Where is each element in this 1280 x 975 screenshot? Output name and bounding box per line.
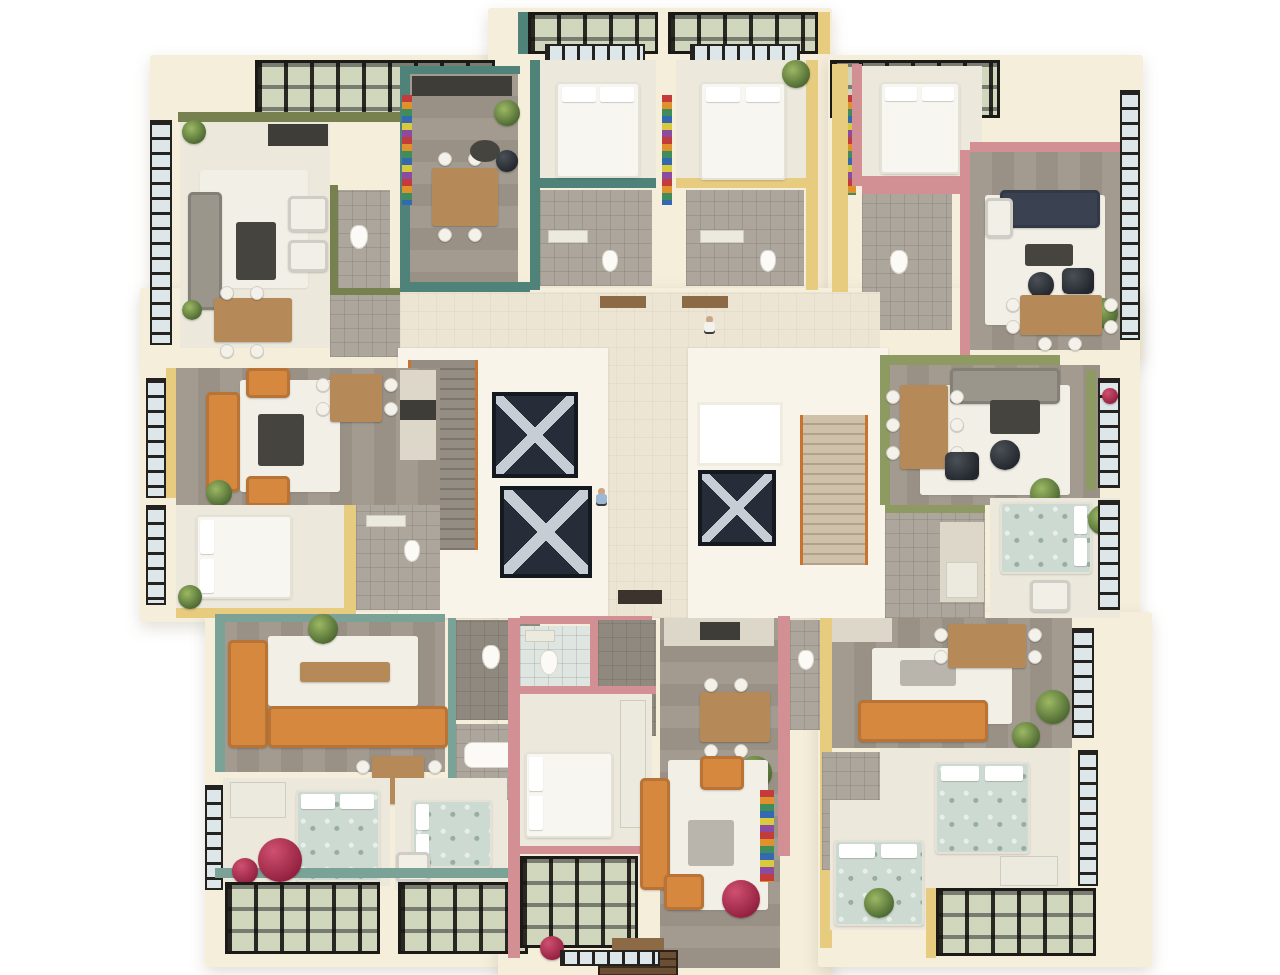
dining-table (900, 385, 948, 469)
coffee-table (258, 414, 304, 466)
wall-accent (518, 12, 528, 54)
wall-accent (818, 12, 830, 54)
dining-chair (950, 390, 964, 404)
wall-accent (832, 64, 848, 304)
person-figure (596, 488, 607, 506)
potted-plant (182, 120, 206, 144)
magenta-pouf (232, 858, 258, 884)
rainbow-bookshelf (760, 790, 774, 882)
dining-chair (384, 378, 398, 392)
magenta-pouf (722, 880, 760, 918)
wall-accent (806, 60, 818, 290)
orange-sectional-sofa (228, 640, 268, 748)
media-console (990, 400, 1040, 434)
coffee-table (1025, 244, 1073, 266)
toilet (760, 250, 776, 272)
coffee-table (688, 820, 734, 866)
window-strip (1098, 500, 1120, 610)
stairwell (800, 415, 868, 565)
bedroom-bench (1030, 580, 1070, 612)
potted-plant (182, 300, 202, 320)
black-armchair (1062, 268, 1094, 294)
window-strip (146, 505, 166, 605)
window-strip (1078, 750, 1098, 886)
orange-sofa (858, 700, 988, 742)
gray-sofa (188, 192, 222, 310)
dining-chair (316, 378, 330, 392)
coffee-table (236, 222, 276, 280)
gray-sofa (950, 368, 1060, 404)
bathroom-vanity (700, 230, 744, 243)
dining-chair (438, 228, 452, 242)
toilet (540, 650, 558, 675)
wall-accent (330, 185, 338, 295)
rainbow-bookshelf (662, 95, 672, 205)
toilet (404, 540, 420, 562)
toilet (482, 645, 500, 669)
desk (1000, 856, 1058, 886)
double-bed (196, 515, 292, 599)
window-strip (1072, 628, 1094, 738)
double-bed (556, 82, 640, 178)
apartment-door (682, 296, 728, 308)
orange-armchair (700, 756, 744, 790)
dining-table (1020, 295, 1102, 335)
dining-chair (1006, 320, 1020, 334)
wall-accent (778, 616, 790, 856)
navy-sofa (1000, 190, 1100, 228)
dining-chair (250, 286, 264, 300)
double-bed (880, 82, 960, 174)
orange-armchair (246, 368, 290, 398)
door-mat (618, 590, 662, 604)
magenta-pouf (1102, 388, 1118, 404)
orange-armchair (664, 874, 704, 910)
window-strip (1120, 90, 1140, 340)
wall-accent (926, 888, 936, 958)
dining-table (330, 374, 382, 422)
toilet (890, 250, 908, 274)
dining-chair (886, 390, 900, 404)
coffee-table (300, 662, 390, 682)
window-strip (146, 378, 166, 498)
wall-accent (400, 66, 520, 74)
wall-accent (530, 60, 540, 290)
wall-accent (508, 618, 520, 958)
wall-accent (1086, 370, 1096, 490)
glass-roof-balcony (936, 888, 1096, 956)
double-bed (525, 752, 613, 838)
dining-table (432, 168, 498, 226)
wall-accent (970, 142, 1120, 152)
wall-accent (885, 505, 985, 513)
wall-accent (960, 150, 970, 360)
wall-accent (178, 112, 418, 122)
dining-chair (950, 418, 964, 432)
toilet (350, 225, 368, 249)
wall-accent (516, 686, 656, 694)
dining-table (214, 298, 292, 342)
dining-chair (356, 760, 370, 774)
dining-chair (1028, 628, 1042, 642)
potted-plant (864, 888, 894, 918)
dining-chair (704, 678, 718, 692)
armchair (288, 240, 328, 272)
orange-armchair (246, 476, 290, 506)
toilet (602, 250, 618, 272)
potted-plant (782, 60, 810, 88)
dining-chair (468, 228, 482, 242)
dining-chair (428, 760, 442, 774)
elevator-shaft (492, 392, 578, 478)
dining-chair (1104, 320, 1118, 334)
wall-accent (344, 505, 356, 617)
armchair (288, 196, 328, 232)
dining-chair (1028, 650, 1042, 664)
glass-roof-balcony (225, 882, 380, 954)
kitchen-counter (268, 124, 328, 146)
wall-accent (166, 368, 176, 498)
wall-accent (448, 618, 456, 800)
kitchen-counter (412, 76, 512, 96)
potted-plant (494, 100, 520, 126)
orange-sofa (640, 778, 670, 890)
potted-plant (308, 614, 338, 644)
elevator-shaft (500, 486, 592, 578)
wardrobe (230, 782, 286, 818)
dining-chair (1104, 298, 1118, 312)
cooktop (700, 622, 740, 640)
bathroom-vanity (366, 515, 406, 527)
apartment-door (600, 296, 646, 308)
dining-chair (934, 650, 948, 664)
rainbow-bookshelf (402, 95, 412, 205)
black-pouf (990, 440, 1020, 470)
dining-table (948, 624, 1026, 668)
kitchen-counter (832, 618, 892, 642)
wall-accent (880, 355, 1060, 365)
double-bed-floral (1000, 502, 1092, 574)
person-figure (704, 316, 715, 334)
wall-accent (516, 846, 656, 854)
refrigerator (946, 562, 978, 598)
dining-chair (886, 418, 900, 432)
black-chair (496, 150, 518, 172)
window-strip (560, 950, 660, 966)
window-strip (150, 120, 172, 345)
dining-chair (1006, 298, 1020, 312)
floorplan-render (0, 0, 1280, 975)
potted-plant (178, 585, 202, 609)
potted-plant (1036, 690, 1070, 724)
dining-chair (316, 402, 330, 416)
elevator-shaft (698, 470, 776, 546)
dining-chair (886, 446, 900, 460)
cooktop (400, 400, 436, 420)
glass-roof-balcony (520, 856, 638, 948)
dining-chair (220, 286, 234, 300)
bathroom-vanity (525, 630, 555, 642)
orange-sectional-sofa (268, 706, 448, 748)
black-armchair (945, 452, 979, 480)
orange-sofa (206, 392, 240, 492)
magenta-pouf (258, 838, 302, 882)
dining-chair (384, 402, 398, 416)
wall-accent (852, 64, 862, 186)
wall-accent (880, 365, 890, 505)
wall-accent (540, 178, 656, 188)
double-bed-floral (935, 762, 1030, 854)
bathroom-vanity (548, 230, 588, 243)
dining-table (700, 692, 770, 742)
skylight (700, 405, 780, 463)
potted-plant (206, 480, 232, 506)
wall-accent (862, 186, 962, 194)
wall-accent (400, 282, 530, 292)
dining-chair (220, 344, 234, 358)
dining-chair (734, 678, 748, 692)
dining-chair (934, 628, 948, 642)
dining-chair (1068, 337, 1082, 351)
dining-chair (250, 344, 264, 358)
dining-chair (1038, 337, 1052, 351)
dining-chair (438, 152, 452, 166)
chaise (985, 198, 1013, 238)
potted-plant (1012, 722, 1040, 750)
double-bed (700, 82, 786, 180)
toilet (798, 650, 814, 670)
wall-accent (215, 622, 225, 772)
